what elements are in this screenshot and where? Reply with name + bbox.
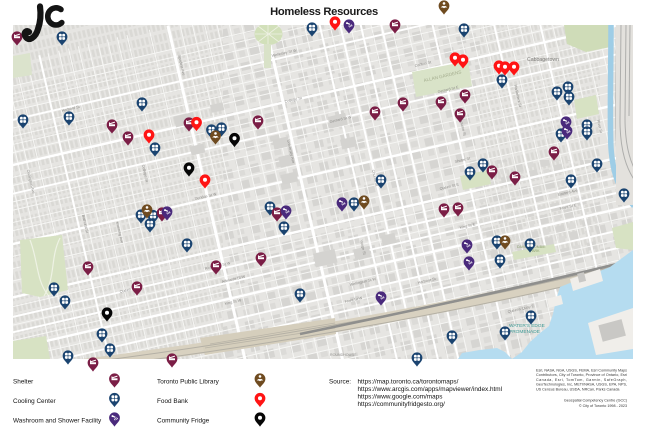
svg-text:Shelter: Shelter: [13, 379, 34, 386]
svg-text:Food Bank: Food Bank: [157, 398, 189, 405]
svg-text:https://www.google.com/maps: https://www.google.com/maps: [358, 394, 443, 401]
svg-text:Contributors, City of Toronto,: Contributors, City of Toronto, Province …: [536, 373, 627, 377]
svg-text:Cooling Center: Cooling Center: [13, 398, 57, 405]
svg-text:ROUNDHOUSE: ROUNDHOUSE: [330, 353, 357, 357]
svg-text:Toronto Public Library: Toronto Public Library: [157, 379, 220, 386]
svg-text:Homeless Resources: Homeless Resources: [270, 6, 378, 18]
svg-text:https://map.toronto.ca/toronto: https://map.toronto.ca/torontomaps/: [358, 379, 459, 386]
svg-text:Canada, Esri, TomTom, Garmin,: Canada, Esri, TomTom, Garmin, SafeGraph,: [536, 378, 627, 382]
svg-text:https://communityfridgesto.org: https://communityfridgesto.org/: [358, 401, 446, 408]
svg-text:US Census Bureau, USDA, NRCan,: US Census Bureau, USDA, NRCan, Parks Can…: [536, 388, 620, 392]
svg-text:Geospatial Competency Centre (: Geospatial Competency Centre (GCC): [564, 399, 627, 403]
svg-text:© City of Toronto 1998 - 2023: © City of Toronto 1998 - 2023: [579, 404, 627, 408]
svg-text:https://www.arcgis.com/apps/ma: https://www.arcgis.com/apps/mapviewer/in…: [358, 386, 503, 393]
svg-text:PROMENADE: PROMENADE: [509, 329, 540, 335]
svg-text:Community Fridge: Community Fridge: [157, 418, 210, 425]
svg-text:Cabbagetown: Cabbagetown: [527, 57, 559, 63]
svg-text:GeoTechnologies, Inc, METI/NAS: GeoTechnologies, Inc, METI/NASA, USGS, E…: [536, 383, 627, 387]
svg-text:Washroom and Shower Facility: Washroom and Shower Facility: [13, 418, 102, 425]
svg-text:Esri, NASA, NGA, USGS, FEMA, E: Esri, NASA, NGA, USGS, FEMA, Esri Commun…: [536, 368, 627, 372]
svg-text:WATER'S EDGE: WATER'S EDGE: [509, 323, 545, 329]
svg-text:Source:: Source:: [329, 379, 351, 386]
